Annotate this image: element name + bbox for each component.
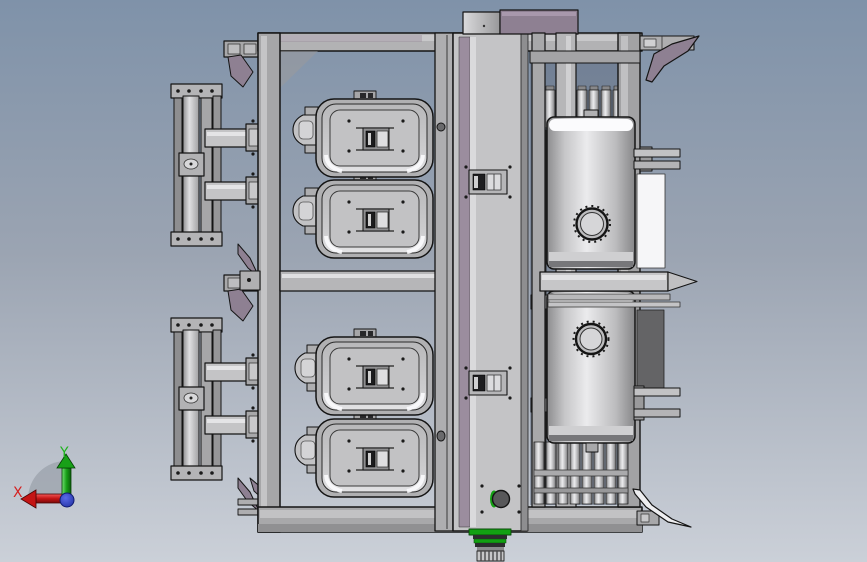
top-chimney[interactable]	[463, 10, 578, 34]
tower-latch-upper	[464, 165, 511, 198]
seed-box-3[interactable]	[316, 337, 433, 415]
z-axis-origin-dot	[60, 493, 74, 507]
seed-box-1[interactable]	[316, 99, 433, 177]
side-panel-dark	[637, 310, 664, 392]
cad-viewport[interactable]: X Y	[0, 0, 867, 562]
box-lid-nub	[354, 329, 376, 337]
side-panel-white	[637, 174, 665, 268]
tower-latch-lower	[464, 366, 511, 399]
bolt	[437, 431, 445, 441]
assembly-drawing: X Y	[0, 0, 867, 562]
bolt	[437, 123, 445, 131]
left-lug-bar	[238, 509, 260, 515]
seed-box-4[interactable]	[316, 419, 433, 497]
seed-box-2[interactable]	[316, 180, 433, 258]
box-lid-nub	[354, 91, 376, 99]
y-axis-label: Y	[59, 445, 69, 461]
tank-lower[interactable]	[547, 291, 635, 452]
center-tower[interactable]	[435, 33, 528, 531]
x-axis-label: X	[13, 485, 23, 501]
tank-upper[interactable]	[547, 110, 635, 269]
left-lug-bar	[238, 499, 260, 505]
